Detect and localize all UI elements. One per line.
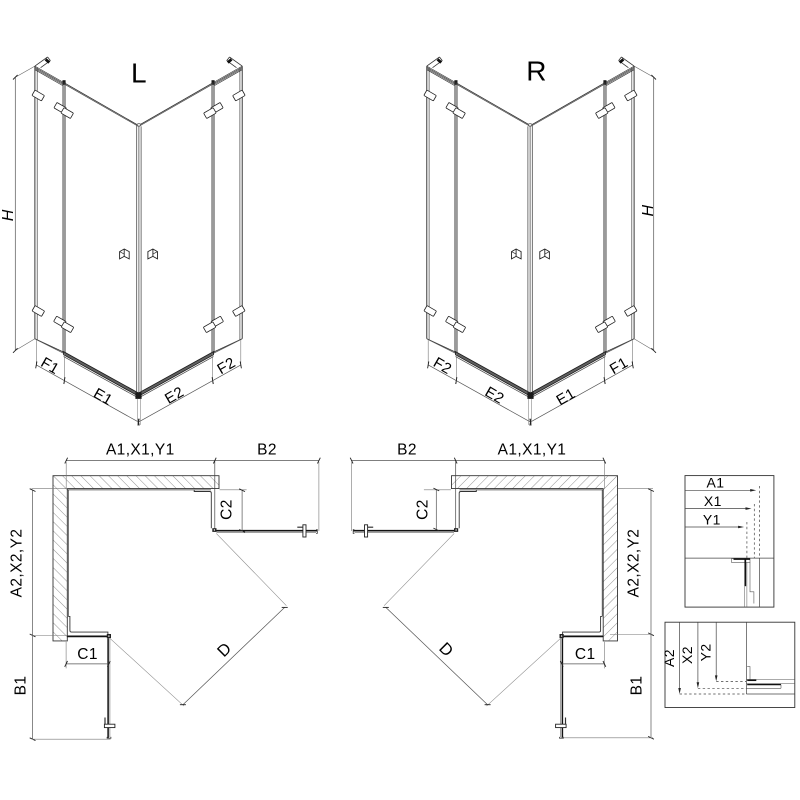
svg-text:C1: C1: [575, 646, 596, 663]
svg-text:B1: B1: [628, 676, 645, 696]
svg-text:A2: A2: [661, 649, 677, 667]
svg-text:A2,X2,Y2: A2,X2,Y2: [9, 529, 26, 598]
svg-text:A1,X1,Y1: A1,X1,Y1: [106, 441, 175, 458]
svg-text:B2: B2: [257, 441, 277, 458]
svg-text:A1: A1: [707, 475, 725, 491]
svg-text:C1: C1: [77, 646, 98, 663]
svg-text:H: H: [640, 204, 657, 216]
svg-text:C2: C2: [219, 499, 236, 520]
svg-text:A1,X1,Y1: A1,X1,Y1: [498, 441, 567, 458]
svg-text:Y1: Y1: [703, 511, 721, 527]
svg-text:H: H: [0, 209, 17, 221]
svg-text:C2: C2: [415, 499, 432, 520]
svg-text:X2: X2: [679, 646, 695, 664]
svg-text:A2,X2,Y2: A2,X2,Y2: [626, 529, 643, 598]
svg-text:R: R: [526, 56, 547, 87]
svg-text:B1: B1: [12, 676, 29, 696]
svg-text:L: L: [131, 58, 147, 89]
svg-text:B2: B2: [397, 441, 417, 458]
svg-text:X1: X1: [704, 493, 722, 509]
svg-text:Y2: Y2: [697, 643, 713, 661]
